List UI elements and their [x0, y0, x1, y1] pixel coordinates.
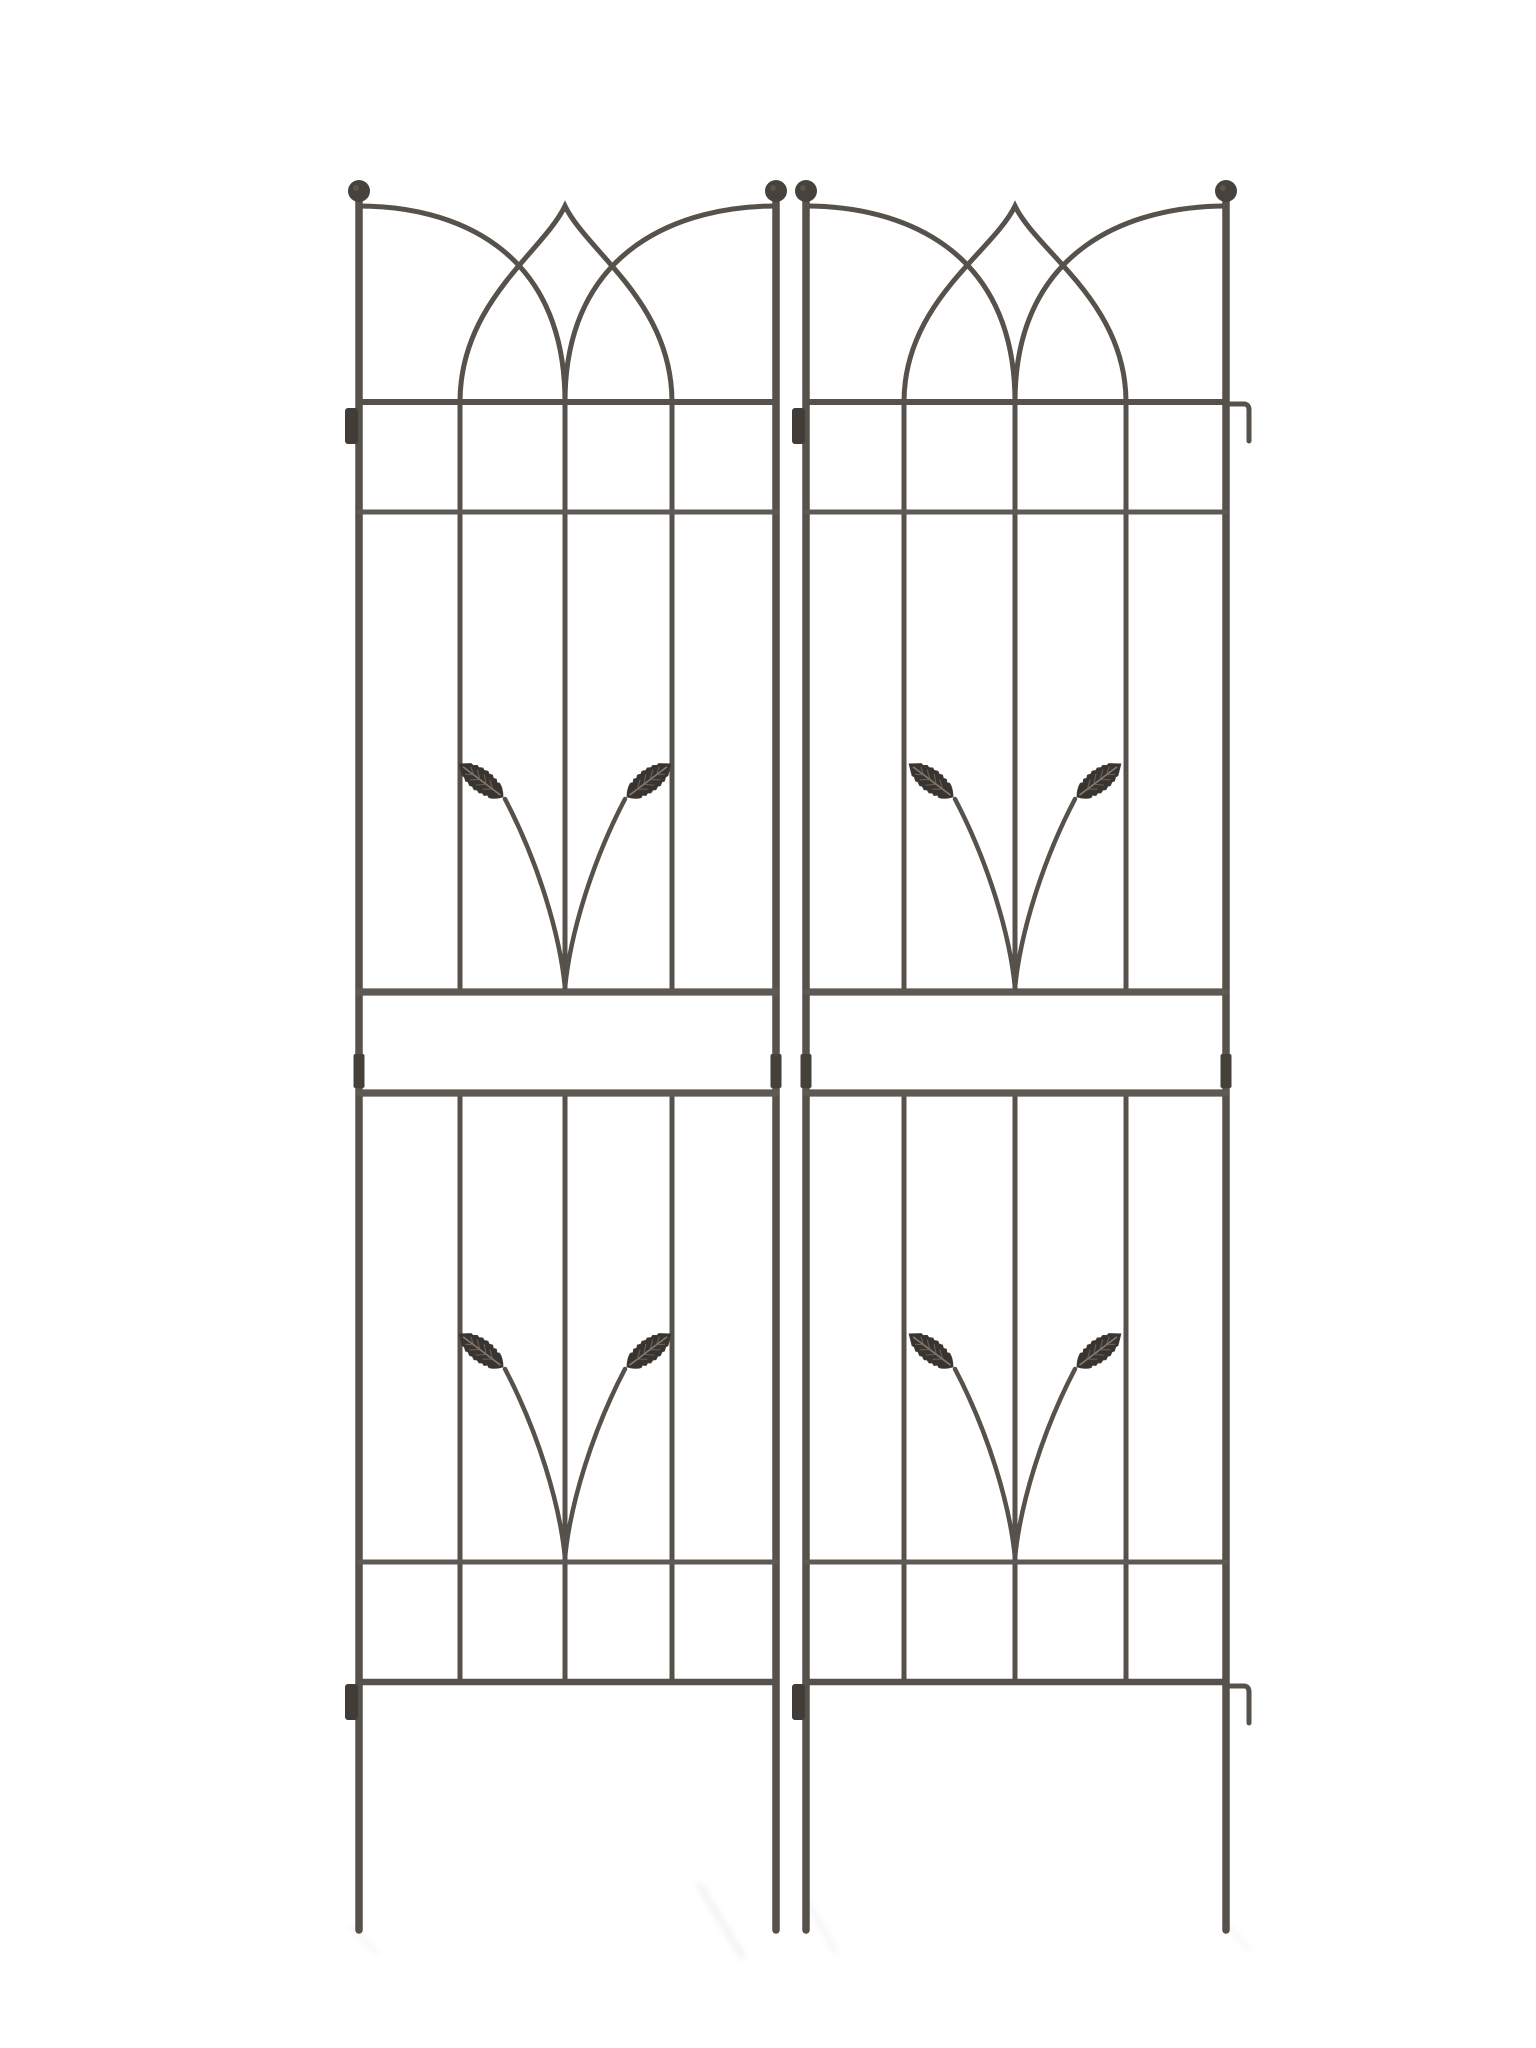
trellis-product-illustration: Pair of dark wrought-iron garden trellis… — [0, 0, 1536, 2048]
leg-shadow — [1228, 1926, 1248, 1948]
leaf-right — [620, 1325, 678, 1377]
leg-shadow — [806, 1900, 836, 1952]
ground-shadows — [352, 1886, 1248, 1956]
gothic-arch-tracery — [359, 206, 776, 402]
leaf-stem-right — [1015, 1369, 1075, 1558]
rail-joint-sleeve — [801, 1054, 812, 1088]
leaf-left — [902, 1325, 960, 1377]
leaf-right — [1070, 755, 1128, 807]
connector-tab — [792, 408, 805, 444]
connector-tab — [345, 1684, 358, 1720]
finial-highlight — [1220, 185, 1226, 191]
leaf-stem-left — [505, 799, 565, 988]
leaf-stem-right — [1015, 799, 1075, 988]
leaf-stem-left — [505, 1369, 565, 1558]
ball-finial — [348, 180, 370, 202]
ball-finial — [795, 180, 817, 202]
rail-joint-sleeve — [771, 1054, 782, 1088]
trellis-right-panel — [792, 180, 1249, 1930]
finial-highlight — [800, 185, 806, 191]
crossed-arc-left — [806, 206, 1015, 402]
finial-highlight — [353, 185, 359, 191]
leg-shadow — [352, 1928, 376, 1952]
product-photo-canvas: Pair of dark wrought-iron garden trellis… — [0, 0, 1536, 2048]
crossed-arc-right — [1015, 206, 1226, 402]
leaf-stem-right — [565, 1369, 625, 1558]
finial-highlight — [770, 185, 776, 191]
leaf-stem-right — [565, 799, 625, 988]
gothic-arch-tracery — [806, 206, 1226, 402]
leaf-left — [902, 755, 960, 807]
connector-tab — [345, 408, 358, 444]
rail-joint-sleeve — [354, 1054, 365, 1088]
grid-bars — [806, 402, 1226, 1682]
ball-finial — [1215, 180, 1237, 202]
leaf-stem-left — [955, 1369, 1015, 1558]
leaf-right — [620, 755, 678, 807]
trellis-left-panel — [345, 180, 787, 1930]
grid-bars — [359, 402, 776, 1682]
leaf-stem-left — [955, 799, 1015, 988]
rail-joint-sleeve — [1221, 1054, 1232, 1088]
ball-finial — [765, 180, 787, 202]
connector-tab — [792, 1684, 805, 1720]
leg-shadow — [700, 1886, 742, 1956]
leaf-right — [1070, 1325, 1128, 1377]
